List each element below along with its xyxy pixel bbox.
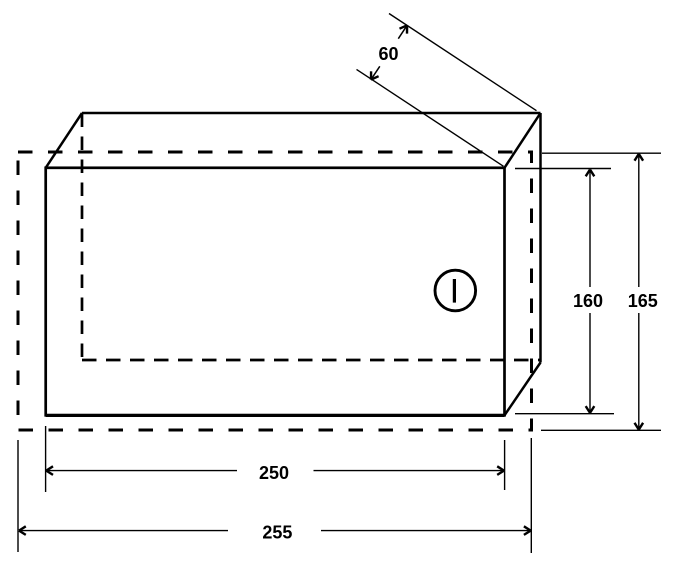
svg-text:160: 160 bbox=[573, 291, 603, 311]
svg-text:60: 60 bbox=[378, 44, 398, 64]
svg-text:250: 250 bbox=[259, 463, 289, 483]
svg-text:165: 165 bbox=[628, 291, 658, 311]
svg-text:255: 255 bbox=[262, 523, 292, 543]
